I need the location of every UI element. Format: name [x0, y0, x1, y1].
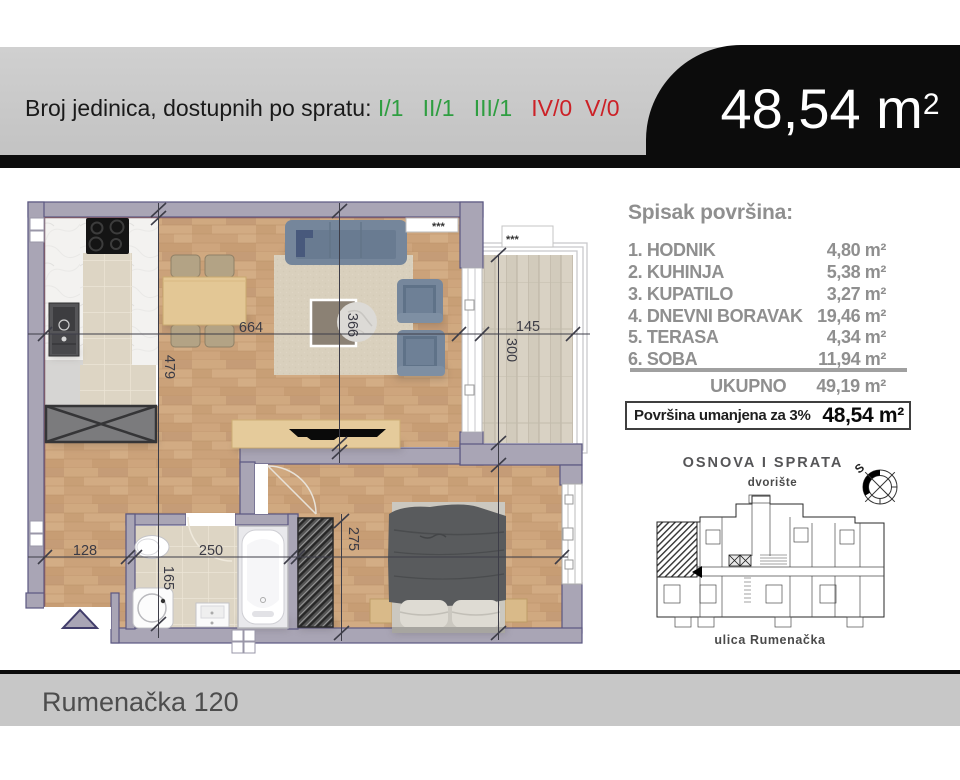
svg-text:***: ***: [432, 221, 446, 233]
svg-text:366: 366: [344, 313, 360, 337]
svg-text:S: S: [852, 460, 867, 476]
svg-text:300: 300: [503, 338, 519, 362]
svg-text:145: 145: [516, 319, 540, 335]
svg-text:664: 664: [239, 320, 263, 336]
svg-text:250: 250: [199, 543, 223, 559]
svg-text:128: 128: [73, 543, 97, 559]
svg-text:165: 165: [160, 566, 176, 590]
svg-text:***: ***: [506, 234, 520, 246]
svg-text:479: 479: [161, 355, 177, 379]
svg-text:275: 275: [345, 527, 361, 551]
